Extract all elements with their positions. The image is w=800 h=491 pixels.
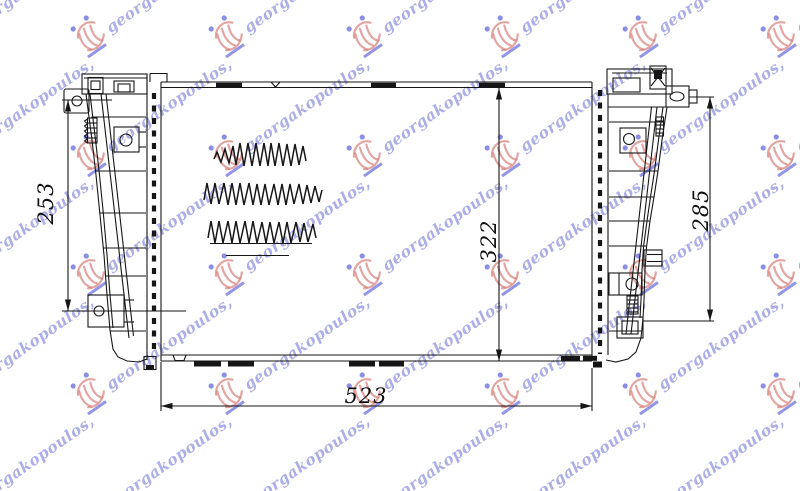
radiator-line-drawing: [0, 0, 800, 491]
dimension-label-left-height: 253: [34, 181, 58, 224]
dimension-label-right-height: 285: [689, 188, 713, 231]
right-mid-bracket: [620, 128, 646, 153]
dimension-label-core-width: 523: [344, 384, 387, 408]
right-tank: [606, 66, 697, 362]
core-fins: [204, 143, 322, 256]
left-tank: [64, 74, 147, 362]
technical-drawing-page: georgakopoulos, georgakopoulos, georgako…: [0, 0, 800, 491]
left-mid-bracket: [114, 127, 146, 152]
dimension-label-core-height: 322: [477, 219, 501, 262]
right-serrated-connector-upper: [656, 117, 664, 136]
right-bottom-connector: [617, 317, 643, 338]
core-seams: [147, 74, 608, 361]
right-channel-bracket: [644, 250, 662, 266]
core: [144, 74, 602, 371]
